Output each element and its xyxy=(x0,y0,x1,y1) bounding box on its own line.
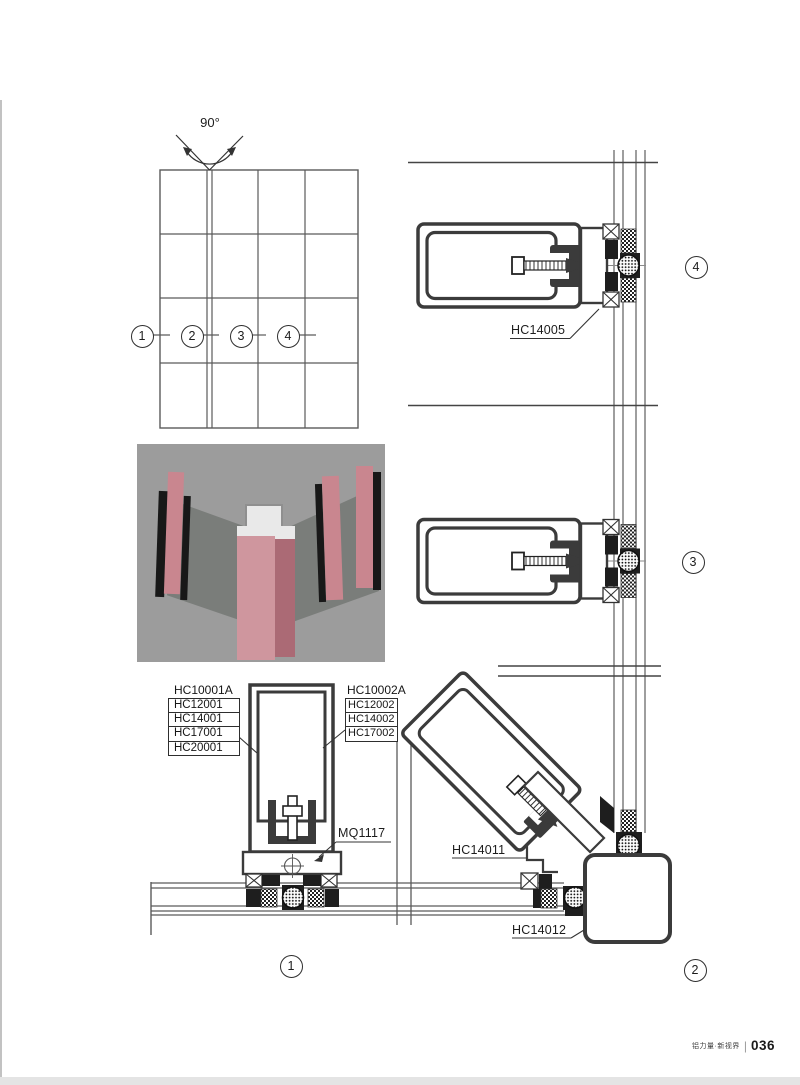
right-mullion-near xyxy=(322,476,343,601)
right-profile-label-stack: HC10002A HC12002 HC14002 HC17002 xyxy=(345,682,406,742)
technical-drawing xyxy=(0,0,800,1085)
left-stack-item: HC12001 xyxy=(168,698,240,714)
left-stack-item: HC20001 xyxy=(168,741,240,757)
grid-elevation xyxy=(151,170,358,428)
right-stack-item: HC14002 xyxy=(345,712,398,728)
right-stack-item: HC12002 xyxy=(345,698,398,714)
right-far-cap xyxy=(373,472,381,590)
scan-edge-bottom xyxy=(0,1077,800,1085)
label-mq1117: MQ1117 xyxy=(338,826,385,840)
grid-callout-4: 4 xyxy=(277,325,300,348)
corner-column-front xyxy=(237,536,275,660)
detail-callout-4: 4 xyxy=(685,256,708,279)
catalog-page: 90° 1 2 3 4 4 3 1 2 HC14005 MQ1117 HC140… xyxy=(0,0,800,1085)
right-mullion-far xyxy=(356,466,373,588)
detail-callout-3: 3 xyxy=(682,551,705,574)
label-hc14005: HC14005 xyxy=(511,323,565,337)
left-profile-label-stack: HC10001A HC12001 HC14001 HC17001 HC20001 xyxy=(168,682,240,756)
corner-3d-render xyxy=(137,444,385,662)
left-stack-item: HC14001 xyxy=(168,712,240,728)
grid-callout-2: 2 xyxy=(181,325,204,348)
detail-2-section xyxy=(401,671,670,942)
detail-callout-1: 1 xyxy=(280,955,303,978)
grid-callout-1: 1 xyxy=(131,325,154,348)
detail-3-section xyxy=(418,520,646,603)
left-stack-header: HC10001A xyxy=(168,682,240,699)
detail-callout-2: 2 xyxy=(684,959,707,982)
corner-column-side xyxy=(275,539,295,657)
detail-4-section xyxy=(418,224,646,307)
label-hc14011: HC14011 xyxy=(452,843,505,857)
footer-separator: | xyxy=(744,1039,747,1053)
left-stack-item: HC17001 xyxy=(168,726,240,742)
angle-annotation xyxy=(176,135,243,170)
page-footer: 铝力量·新视界 | 036 xyxy=(692,1038,775,1053)
label-hc14012: HC14012 xyxy=(512,923,566,937)
right-stack-header: HC10002A xyxy=(345,682,406,699)
right-stack-item: HC17002 xyxy=(345,726,398,742)
footer-page-number: 036 xyxy=(751,1038,775,1053)
scan-edge-left xyxy=(0,100,2,1085)
grid-callout-3: 3 xyxy=(230,325,253,348)
angle-label: 90° xyxy=(192,115,228,130)
footer-brand-text: 铝力量·新视界 xyxy=(692,1041,740,1051)
